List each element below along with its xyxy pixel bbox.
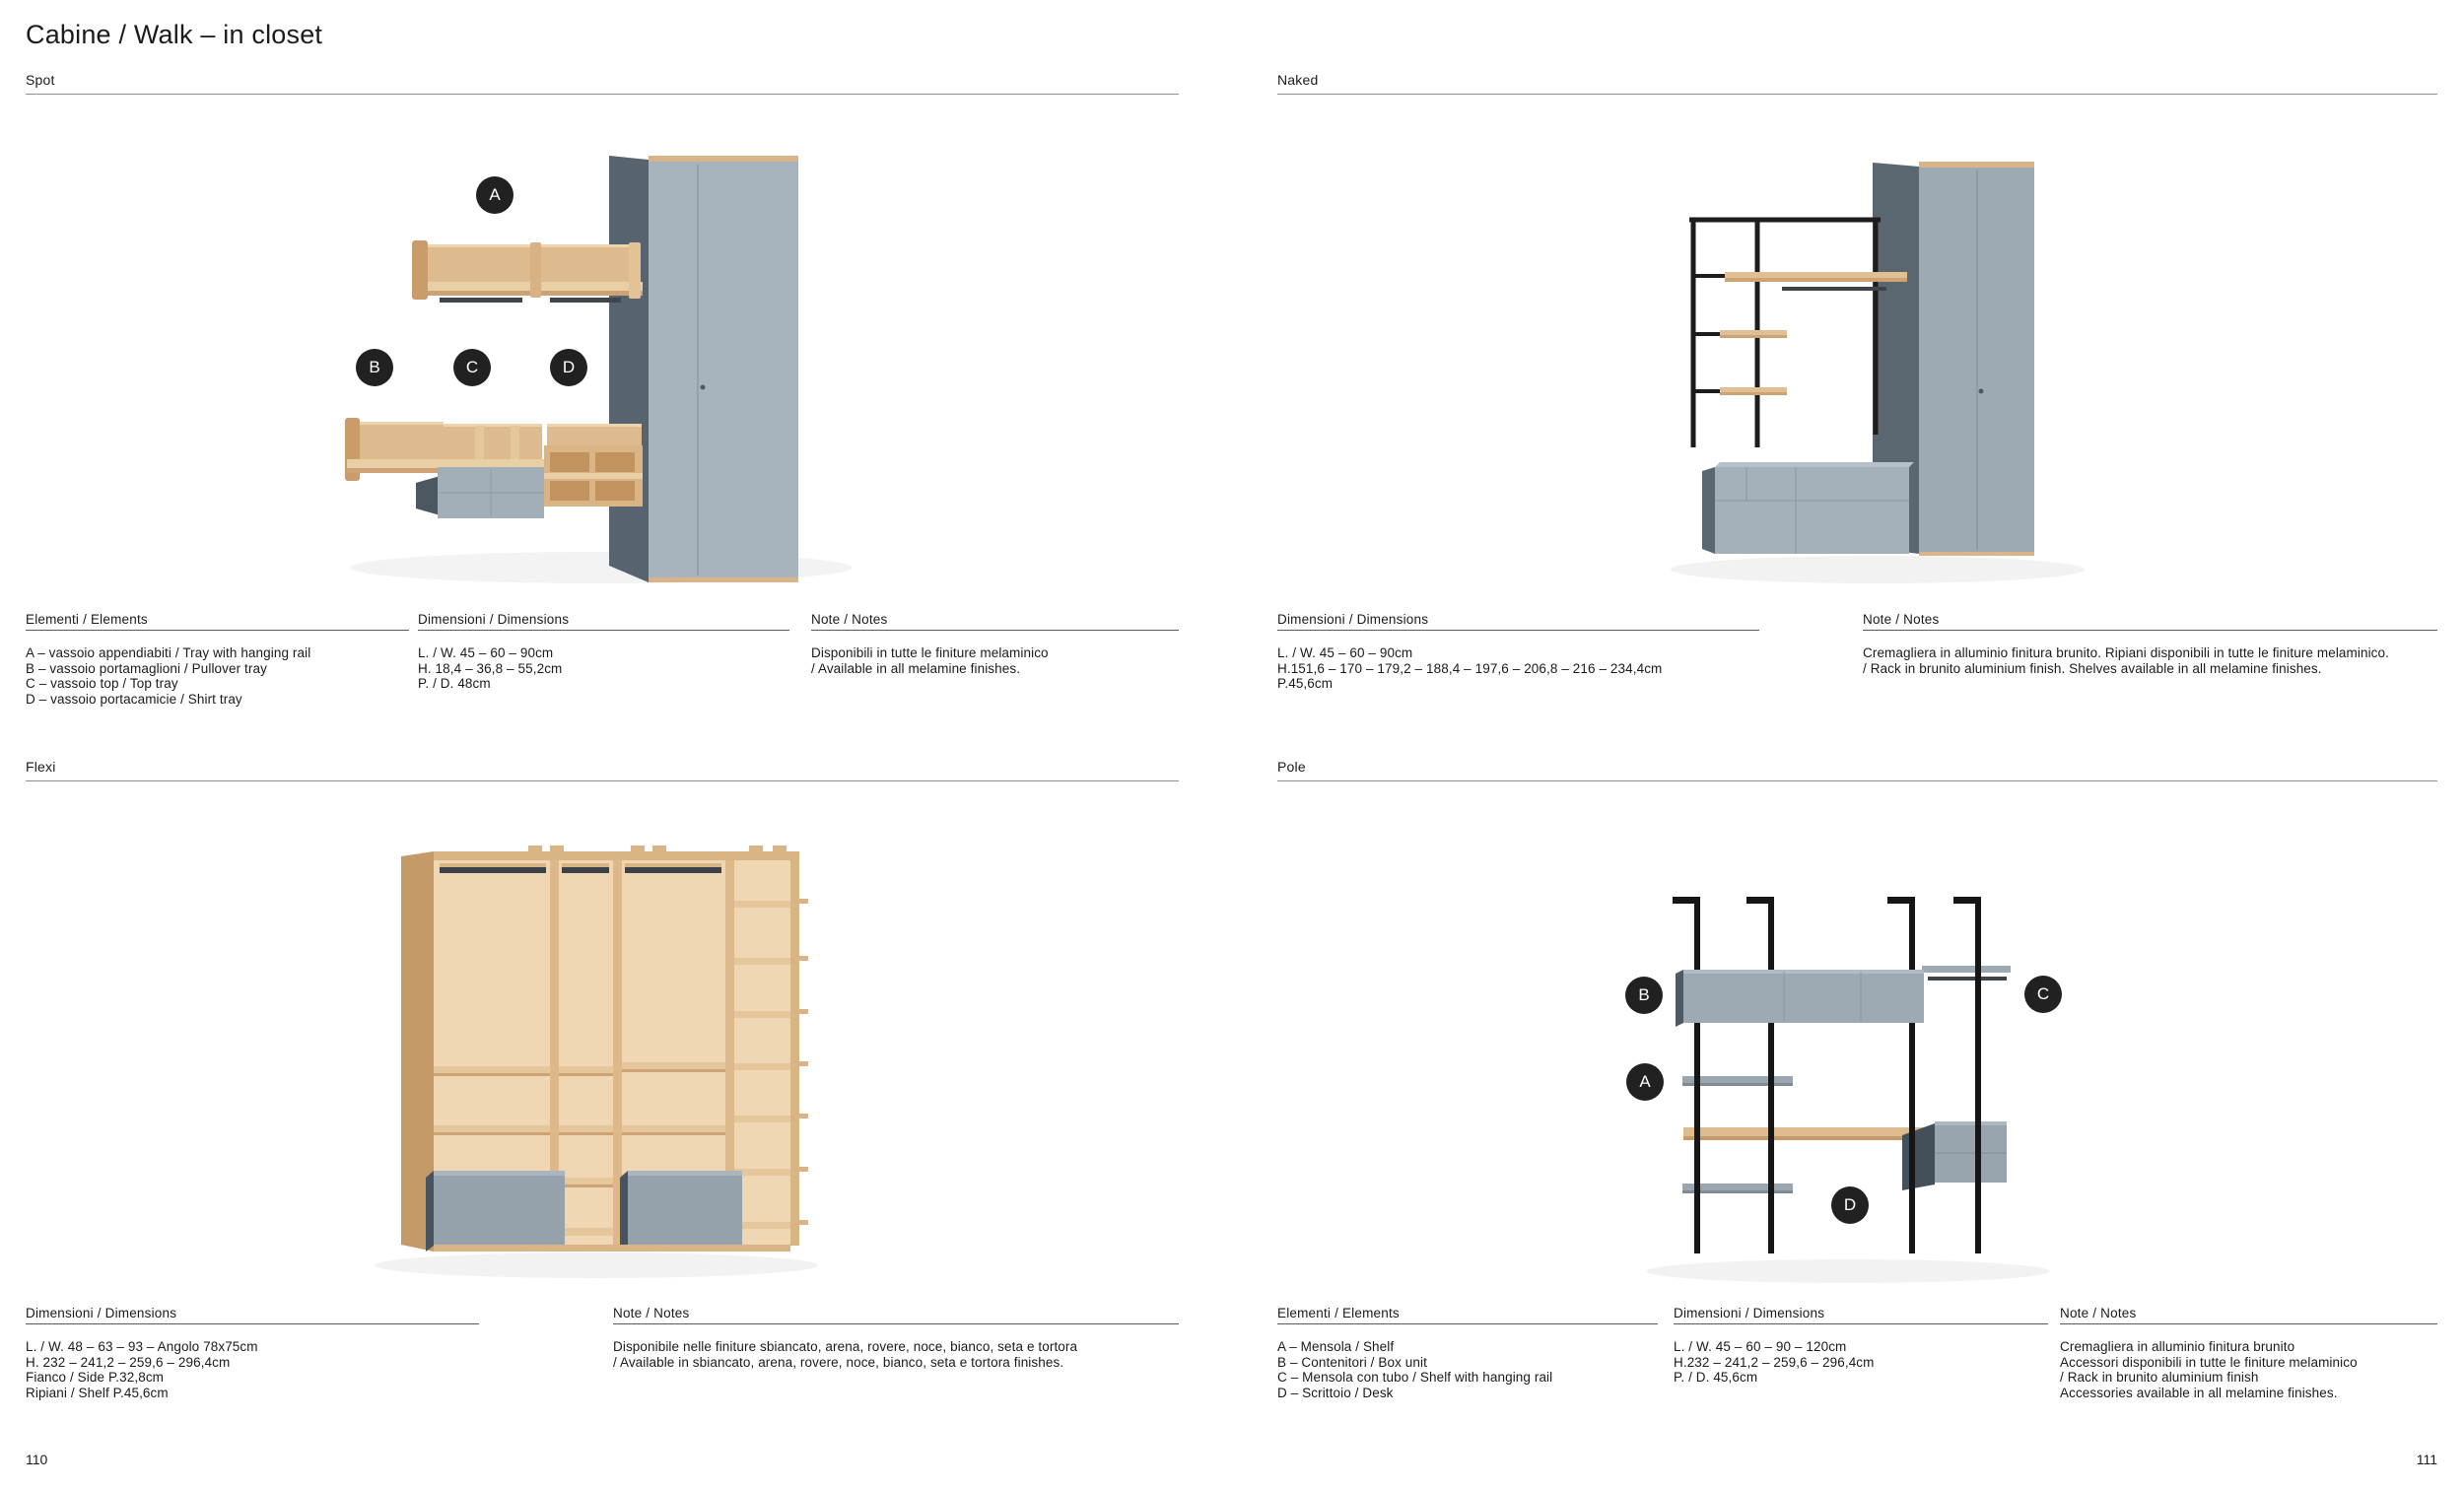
section-label-naked: Naked xyxy=(1277,72,1318,88)
badge-d-label: D xyxy=(563,358,575,377)
badge-a: A xyxy=(1626,1063,1664,1101)
column-header: Note / Notes xyxy=(811,612,1179,631)
spec-line: P. / D. 48cm xyxy=(418,676,789,692)
column-header: Note / Notes xyxy=(613,1306,1179,1324)
page-number-left: 110 xyxy=(26,1452,47,1467)
flexi-product-illustration xyxy=(335,838,848,1291)
spec-line: H.232 – 241,2 – 259,6 – 296,4cm xyxy=(1674,1355,2048,1371)
spec-lines: Cremagliera in alluminio finitura brunit… xyxy=(1863,645,2437,676)
column-header: Note / Notes xyxy=(1863,612,2437,631)
spec-line: A – Mensola / Shelf xyxy=(1277,1339,1658,1355)
column-header: Elementi / Elements xyxy=(1277,1306,1658,1324)
spec-line: L. / W. 45 – 60 – 90cm xyxy=(418,645,789,661)
column-header: Elementi / Elements xyxy=(26,612,409,631)
badge-c: C xyxy=(2024,976,2062,1013)
spec-line: P. / D. 45,6cm xyxy=(1674,1370,2048,1386)
badge-c: C xyxy=(453,349,491,386)
spec-line: L. / W. 45 – 60 – 90 – 120cm xyxy=(1674,1339,2048,1355)
spec-line: / Rack in brunito aluminium finish xyxy=(2060,1370,2437,1386)
column-header: Dimensioni / Dimensions xyxy=(418,612,789,631)
spec-line: Accessori disponibili in tutte le finitu… xyxy=(2060,1355,2437,1371)
column-header: Dimensioni / Dimensions xyxy=(26,1306,479,1324)
spec-line: C – Mensola con tubo / Shelf with hangin… xyxy=(1277,1370,1658,1386)
spec-line: A – vassoio appendiabiti / Tray with han… xyxy=(26,645,409,661)
spec-line: B – vassoio portamaglioni / Pullover tra… xyxy=(26,661,409,677)
naked-dimensions-column: Dimensioni / Dimensions L. / W. 45 – 60 … xyxy=(1277,612,1759,692)
spec-line: Cremagliera in alluminio finitura brunit… xyxy=(1863,645,2437,661)
spec-lines: Disponibili in tutte le finiture melamin… xyxy=(811,645,1179,676)
spec-line: H. 232 – 241,2 – 259,6 – 296,4cm xyxy=(26,1355,479,1371)
pole-dimensions-column: Dimensioni / Dimensions L. / W. 45 – 60 … xyxy=(1674,1306,2048,1386)
spot-dimensions-column: Dimensioni / Dimensions L. / W. 45 – 60 … xyxy=(418,612,789,692)
section-rule-pole xyxy=(1277,780,2437,781)
badge-c-label: C xyxy=(2037,984,2049,1004)
section-rule-spot xyxy=(26,94,1179,95)
spot-elements-column: Elementi / Elements A – vassoio appendia… xyxy=(26,612,409,707)
badge-b: B xyxy=(356,349,393,386)
badge-d-label: D xyxy=(1844,1195,1856,1215)
section-label-pole: Pole xyxy=(1277,759,1306,775)
spec-lines: Cremagliera in alluminio finitura brunit… xyxy=(2060,1339,2437,1400)
spec-line: Disponibili in tutte le finiture melamin… xyxy=(811,645,1179,661)
spec-line: C – vassoio top / Top tray xyxy=(26,676,409,692)
spec-line: L. / W. 45 – 60 – 90cm xyxy=(1277,645,1759,661)
page-number-right: 111 xyxy=(2365,1452,2437,1467)
spec-lines: L. / W. 45 – 60 – 90cm H.151,6 – 170 – 1… xyxy=(1277,645,1759,692)
badge-b-label: B xyxy=(369,358,379,377)
spot-notes-column: Note / Notes Disponibili in tutte le fin… xyxy=(811,612,1179,676)
spec-line: L. / W. 48 – 63 – 93 – Angolo 78x75cm xyxy=(26,1339,479,1355)
column-header: Dimensioni / Dimensions xyxy=(1277,612,1759,631)
section-rule-flexi xyxy=(26,780,1179,781)
pole-notes-column: Note / Notes Cremagliera in alluminio fi… xyxy=(2060,1306,2437,1400)
spec-line: D – vassoio portacamicie / Shirt tray xyxy=(26,692,409,708)
spec-line: Accessories available in all melamine fi… xyxy=(2060,1386,2437,1401)
badge-a-label: A xyxy=(489,185,500,205)
badge-a-label: A xyxy=(1639,1072,1650,1092)
badge-d: D xyxy=(1831,1186,1869,1224)
spec-line: Fianco / Side P.32,8cm xyxy=(26,1370,479,1386)
badge-c-label: C xyxy=(466,358,478,377)
flexi-dimensions-column: Dimensioni / Dimensions L. / W. 48 – 63 … xyxy=(26,1306,479,1400)
section-label-spot: Spot xyxy=(26,72,55,88)
badge-a: A xyxy=(476,176,513,214)
spec-line: Cremagliera in alluminio finitura brunit… xyxy=(2060,1339,2437,1355)
spec-lines: A – vassoio appendiabiti / Tray with han… xyxy=(26,645,409,707)
spec-line: / Rack in brunito aluminium finish. Shel… xyxy=(1863,661,2437,677)
pole-elements-column: Elementi / Elements A – Mensola / Shelf … xyxy=(1277,1306,1658,1400)
column-header: Note / Notes xyxy=(2060,1306,2437,1324)
spec-line: / Available in all melamine finishes. xyxy=(811,661,1179,677)
flexi-notes-column: Note / Notes Disponibile nelle finiture … xyxy=(613,1306,1179,1370)
badge-d: D xyxy=(550,349,587,386)
spec-lines: Disponibile nelle finiture sbiancato, ar… xyxy=(613,1339,1179,1370)
section-label-flexi: Flexi xyxy=(26,759,56,775)
spec-line: B – Contenitori / Box unit xyxy=(1277,1355,1658,1371)
pole-product-illustration xyxy=(1607,877,2158,1301)
spec-line: H.151,6 – 170 – 179,2 – 188,4 – 197,6 – … xyxy=(1277,661,1759,677)
column-header: Dimensioni / Dimensions xyxy=(1674,1306,2048,1324)
naked-notes-column: Note / Notes Cremagliera in alluminio fi… xyxy=(1863,612,2437,676)
spec-line: H. 18,4 – 36,8 – 55,2cm xyxy=(418,661,789,677)
badge-b-label: B xyxy=(1638,985,1649,1005)
spec-lines: L. / W. 45 – 60 – 90cm H. 18,4 – 36,8 – … xyxy=(418,645,789,692)
spec-line: P.45,6cm xyxy=(1277,676,1759,692)
section-rule-naked xyxy=(1277,94,2437,95)
badge-b: B xyxy=(1625,977,1663,1014)
spec-lines: A – Mensola / Shelf B – Contenitori / Bo… xyxy=(1277,1339,1658,1400)
page-title: Cabine / Walk – in closet xyxy=(26,20,322,50)
spec-line: D – Scrittoio / Desk xyxy=(1277,1386,1658,1401)
spec-lines: L. / W. 45 – 60 – 90 – 120cm H.232 – 241… xyxy=(1674,1339,2048,1386)
spec-line: Ripiani / Shelf P.45,6cm xyxy=(26,1386,479,1401)
spec-lines: L. / W. 48 – 63 – 93 – Angolo 78x75cm H.… xyxy=(26,1339,479,1400)
spec-line: / Available in sbiancato, arena, rovere,… xyxy=(613,1355,1179,1371)
naked-product-illustration xyxy=(1626,108,2119,611)
spec-line: Disponibile nelle finiture sbiancato, ar… xyxy=(613,1339,1179,1355)
